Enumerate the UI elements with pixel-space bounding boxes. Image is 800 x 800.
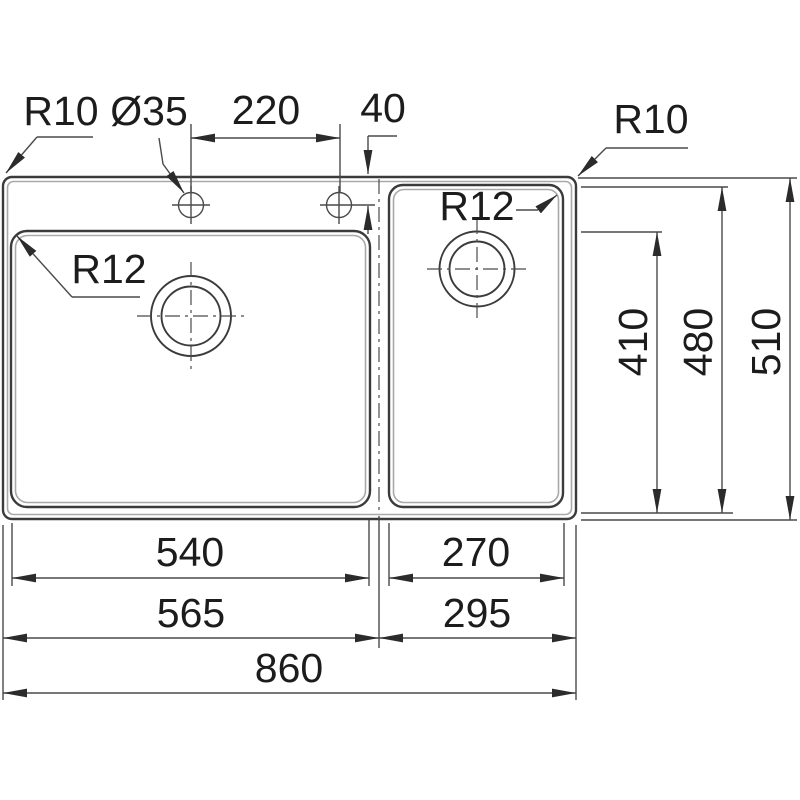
right-bowl-width-value: 270: [442, 529, 510, 575]
label-left-bowl-radius: R12: [17, 236, 147, 297]
label-corner-radius-right: R10: [578, 96, 689, 176]
overall-width-value: 860: [255, 645, 323, 691]
dim-bowl-depth: 410: [610, 232, 657, 513]
tap-hole-offset-value: 40: [360, 85, 406, 131]
dim-right-bowl-width: 270: [389, 529, 564, 578]
dim-left-module-width: 565: [3, 590, 379, 638]
left-bowl-width-value: 540: [156, 529, 224, 575]
bowl-depth-value: 410: [610, 308, 656, 376]
label-corner-radius-left: R10: [6, 88, 99, 173]
right-bowl-shadow: [394, 190, 559, 503]
sink-technical-drawing: R10 Ø35 220 40 R10 R12 R12: [0, 0, 800, 800]
right-module-width-value: 295: [443, 590, 511, 636]
left-drain-outer: [151, 276, 231, 356]
tap-hole-spacing-value: 220: [232, 87, 300, 133]
left-drain: [137, 262, 245, 370]
dim-left-bowl-width: 540: [12, 529, 369, 578]
dim-overall-depth: 510: [743, 178, 790, 520]
dim-right-bowl-outer-depth: 480: [675, 187, 722, 513]
corner-radius-right-value: R10: [613, 96, 688, 142]
dim-tap-hole-offset: 40: [360, 85, 406, 234]
dim-right-module-width: 295: [379, 590, 576, 638]
dim-overall-width: 860: [3, 645, 576, 693]
right-bowl-edge: [389, 185, 563, 507]
tap-hole-2: [320, 186, 375, 224]
sink-technical-drawing-page: R10 Ø35 220 40 R10 R12 R12: [0, 0, 800, 800]
left-bowl-radius-value: R12: [71, 246, 146, 292]
corner-radius-left-value: R10: [23, 88, 98, 134]
right-bowl-radius-value: R12: [439, 183, 514, 229]
tap-hole-diameter-value: Ø35: [110, 88, 188, 134]
right-bowl: [389, 185, 563, 507]
right-drain: [427, 219, 527, 319]
left-module-width-value: 565: [157, 590, 225, 636]
overall-depth-value: 510: [743, 308, 789, 376]
right-bowl-outer-depth-value: 480: [675, 308, 721, 376]
